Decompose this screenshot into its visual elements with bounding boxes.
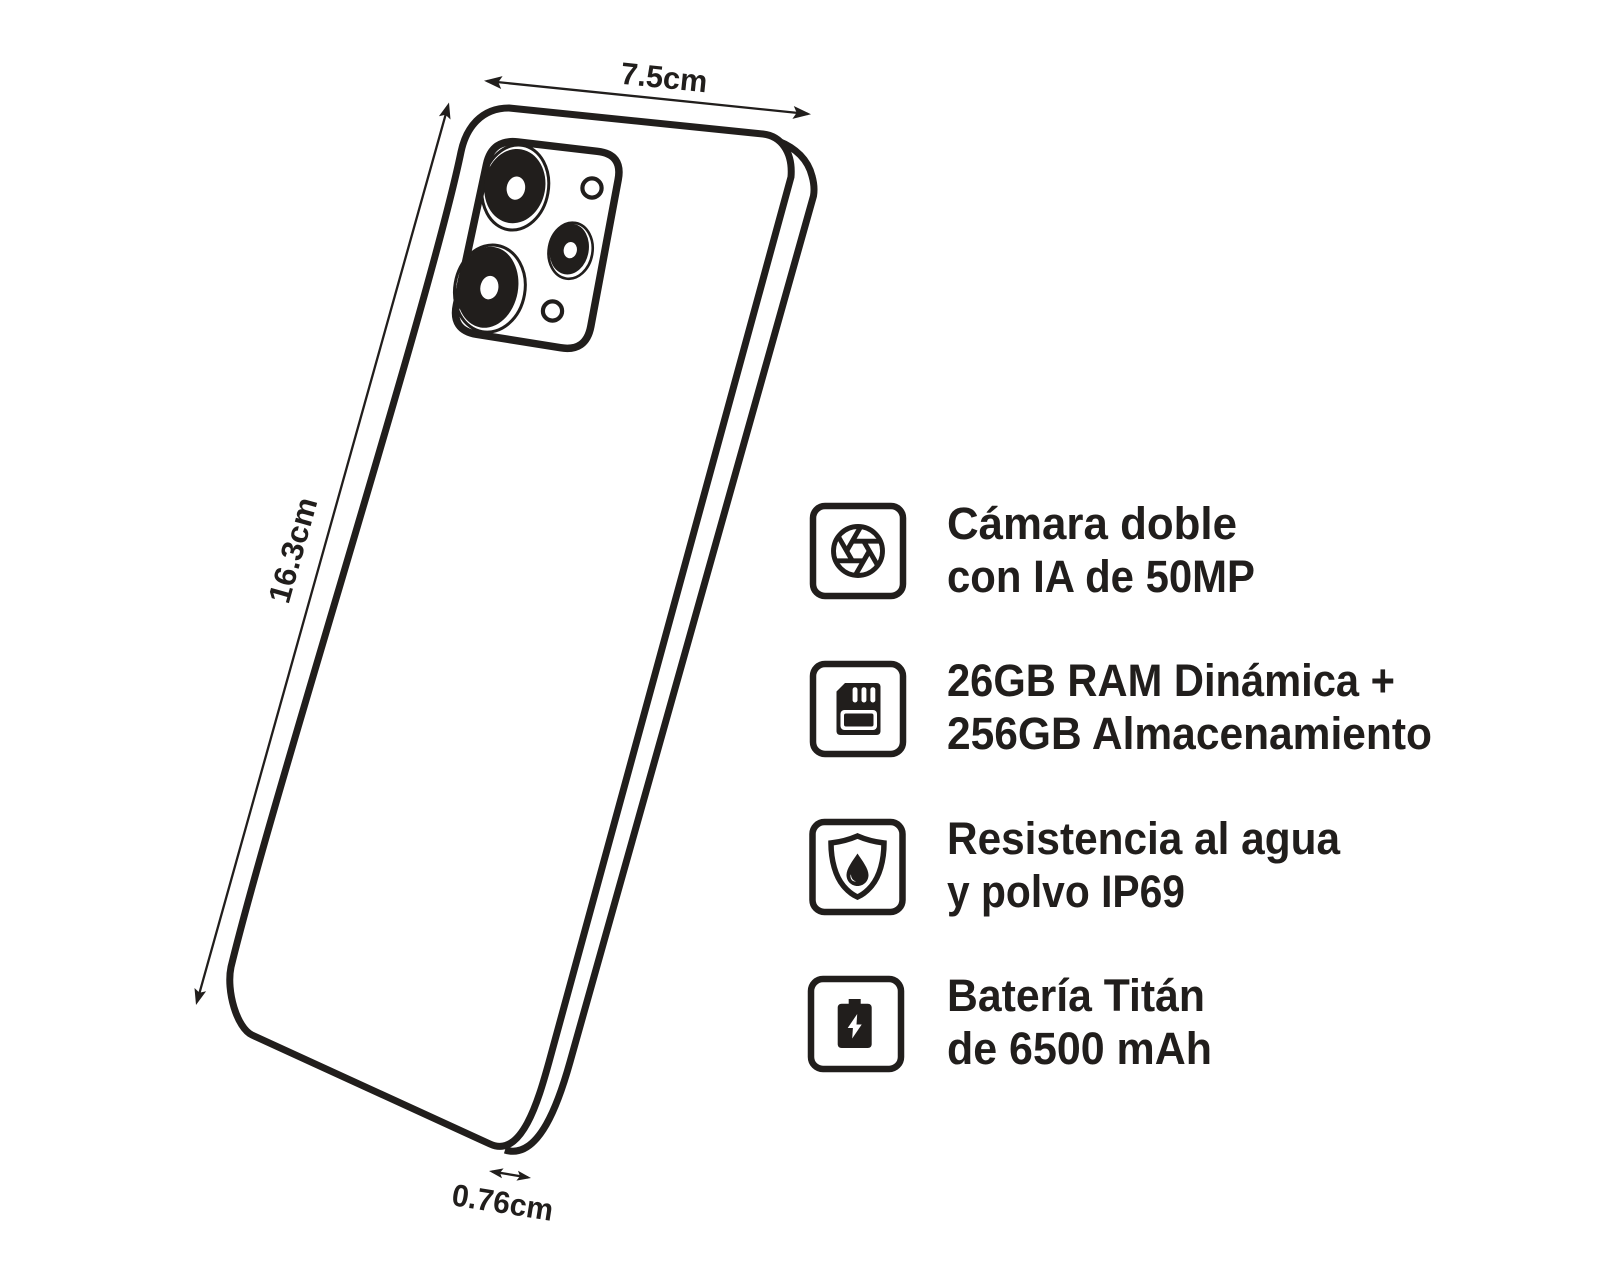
svg-text:y polvo IP69: y polvo IP69 [947,866,1185,917]
svg-text:26GB RAM Dinámica +: 26GB RAM Dinámica + [947,655,1395,706]
svg-text:Batería Titán: Batería Titán [947,970,1205,1021]
svg-text:Resistencia al agua: Resistencia al agua [947,813,1341,864]
svg-text:256GB Almacenamiento: 256GB Almacenamiento [947,708,1432,759]
svg-text:con IA de 50MP: con IA de 50MP [947,551,1255,602]
svg-text:Cámara doble: Cámara doble [947,498,1237,549]
svg-text:de 6500 mAh: de 6500 mAh [947,1023,1212,1074]
